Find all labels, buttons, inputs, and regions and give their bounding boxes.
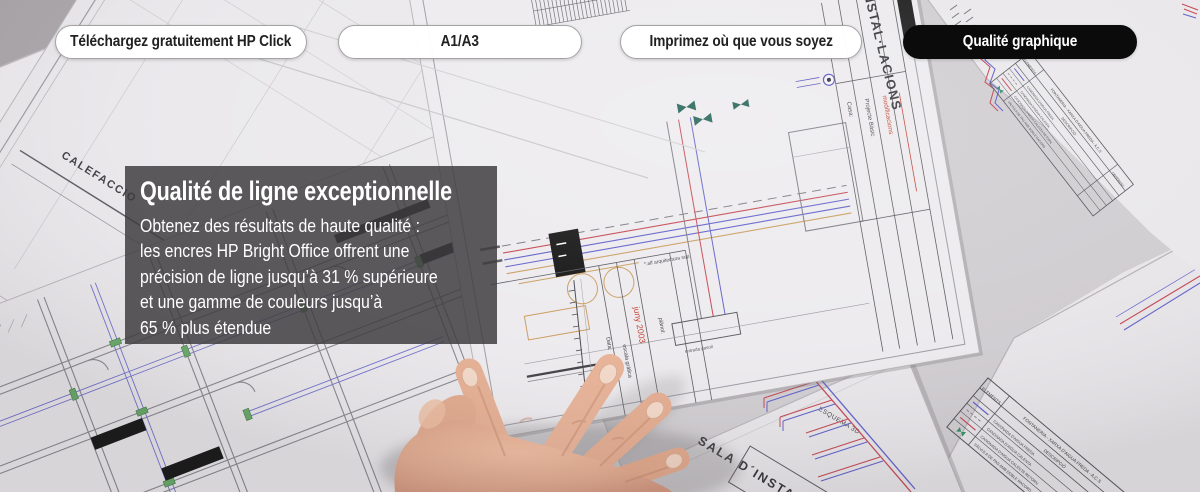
feature-text-panel: Qualité de ligne exceptionnelle Obtenez … — [125, 166, 497, 344]
pill-hp-click[interactable]: Téléchargez gratuitement HP Click — [55, 25, 307, 59]
pill-print-anywhere[interactable]: Imprimez où que vous soyez — [620, 25, 862, 59]
pill-a1-a3-label: A1/A3 — [441, 33, 479, 51]
pill-hp-click-label: Téléchargez gratuitement HP Click — [70, 33, 291, 51]
hp-hero-section: CALEFACCIO — [0, 0, 1200, 492]
panel-body: Obtenez des résultats de haute qualité :… — [140, 214, 442, 342]
pill-graphic-quality-label: Qualité graphique — [963, 33, 1077, 51]
pill-a1-a3[interactable]: A1/A3 — [338, 25, 582, 59]
panel-title: Qualité de ligne exceptionnelle — [140, 175, 414, 208]
pill-graphic-quality-active[interactable]: Qualité graphique — [903, 25, 1137, 59]
pill-print-anywhere-label: Imprimez où que vous soyez — [649, 33, 832, 51]
